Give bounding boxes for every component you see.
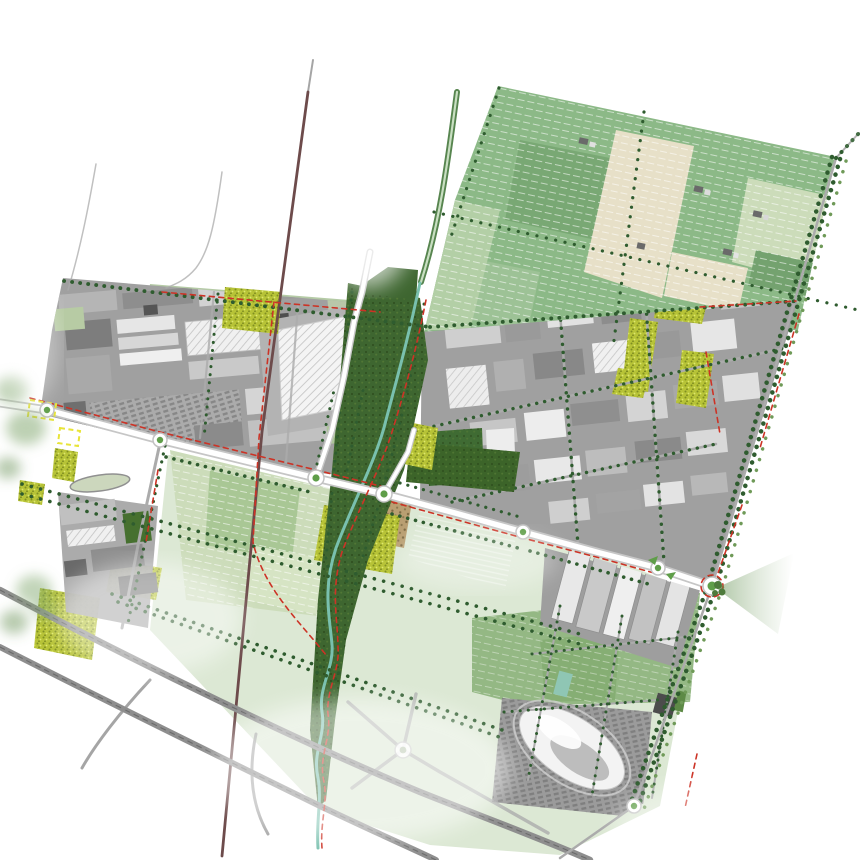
masterplan-map: [0, 0, 860, 860]
roundabout: [376, 486, 392, 502]
masterplan-canvas: [0, 0, 860, 860]
roundabout: [40, 403, 54, 417]
oval-track: [69, 471, 131, 495]
roundabout: [153, 433, 167, 447]
roundabout: [308, 470, 324, 486]
